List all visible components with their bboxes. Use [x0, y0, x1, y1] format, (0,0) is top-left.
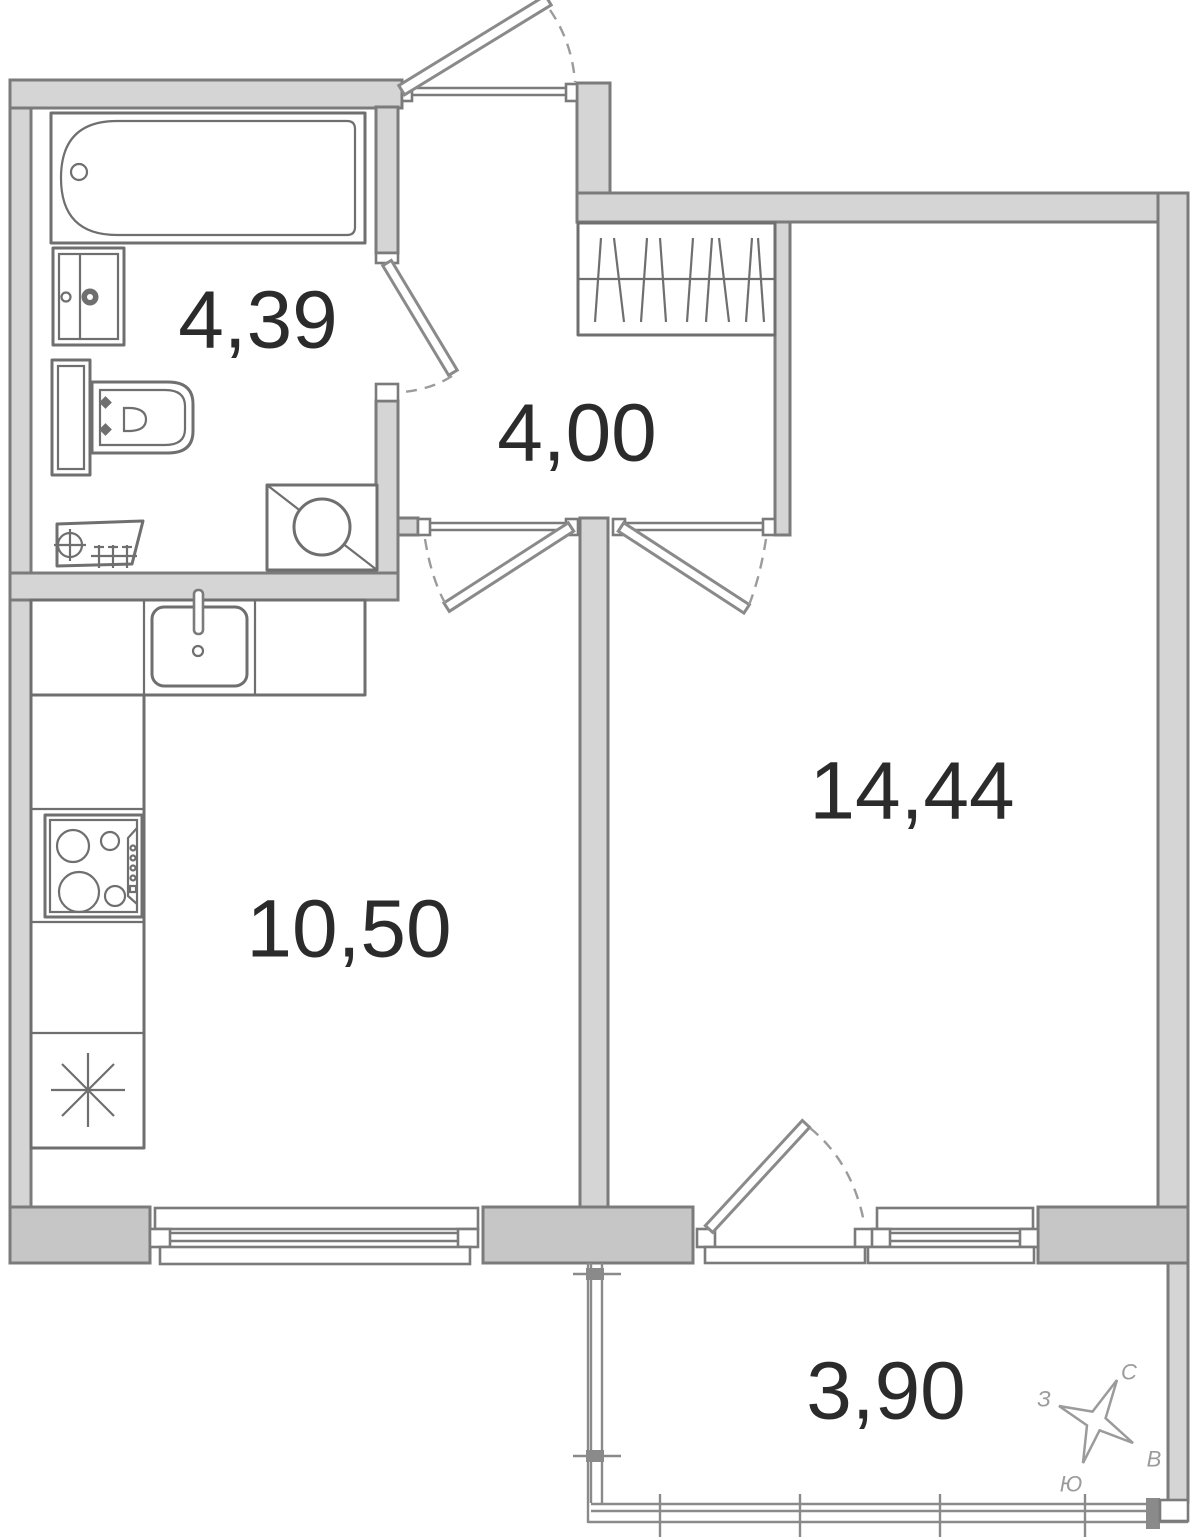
- door-swing-arc: [810, 1128, 864, 1222]
- door-swing-arc: [749, 539, 766, 605]
- entrance-door: [399, 0, 577, 101]
- window-sill: [160, 1247, 470, 1264]
- bathroom-door-leaf-icon: [383, 260, 457, 375]
- balcony-area-label: 3,90: [806, 1346, 966, 1437]
- wall-bathroom-right-lower: [376, 401, 398, 600]
- living-room-door: [613, 519, 775, 613]
- wall-left: [10, 80, 31, 1263]
- wall-top: [10, 80, 402, 108]
- kitchen-door: [418, 519, 578, 611]
- bathroom-sink-icon: [53, 248, 124, 345]
- toilet-icon: [52, 360, 193, 475]
- wardrobe-icon: [578, 223, 775, 335]
- door-swing-arc: [550, 10, 575, 82]
- bathroom-door: [376, 253, 457, 401]
- balcony-door: [697, 1121, 877, 1263]
- wall-bottom-left: [10, 1207, 150, 1263]
- washing-machine-icon: [267, 485, 377, 570]
- door-sill: [705, 1247, 865, 1263]
- door-jamb: [376, 384, 398, 401]
- door-jamb: [566, 84, 577, 101]
- radiator-icon: [54, 521, 143, 568]
- compass-north-label: С: [1121, 1360, 1137, 1385]
- compass-south-label: Ю: [1060, 1472, 1083, 1497]
- floor-plan-drawing: 4,39 4,00 10,50 14,44 3,90 С З В Ю: [0, 0, 1192, 1540]
- window-post: [872, 1229, 890, 1247]
- door-swing-arc: [425, 539, 445, 603]
- compass-east-label: В: [1147, 1447, 1162, 1472]
- window-post: [1020, 1229, 1038, 1247]
- wall-bottom-right: [1038, 1207, 1188, 1263]
- window-recess: [877, 1208, 1033, 1229]
- compass-rose-icon: С З В Ю: [1037, 1360, 1161, 1497]
- glazing-corner-post: [1146, 1498, 1160, 1529]
- entrance-door-leaf-icon: [399, 0, 551, 95]
- compass-star-icon: [1059, 1380, 1133, 1463]
- kitchen-door-leaf-icon: [444, 523, 574, 612]
- balcony-door-leaf-icon: [705, 1121, 809, 1233]
- stove-icon: [45, 815, 142, 917]
- wall-hallway-living: [775, 222, 790, 535]
- living-door-leaf-icon: [618, 523, 749, 613]
- kitchen-area-label: 10,50: [246, 884, 451, 975]
- window-recess: [155, 1208, 478, 1229]
- living-room-area-label: 14,44: [809, 746, 1014, 837]
- floor-plan: 4,39 4,00 10,50 14,44 3,90 С З В Ю: [0, 0, 1192, 1540]
- glazing-end-box: [1160, 1500, 1188, 1521]
- living-room-window: [868, 1208, 1038, 1263]
- faucet-icon: [194, 590, 203, 634]
- door-jamb: [418, 519, 430, 535]
- wall-bottom-middle: [483, 1207, 693, 1263]
- wall-balcony-right: [1168, 1263, 1188, 1502]
- kitchen-window: [150, 1208, 478, 1264]
- wall-living-top: [577, 193, 1188, 222]
- window-post: [458, 1229, 478, 1247]
- wall-bathroom-right-upper: [376, 107, 398, 253]
- hallway-area-label: 4,00: [497, 388, 657, 479]
- compass-west-label: З: [1037, 1387, 1051, 1412]
- window-post: [150, 1229, 170, 1247]
- fridge-icon: [51, 1053, 125, 1127]
- window-sill: [868, 1247, 1034, 1263]
- bathroom-area-label: 4,39: [178, 275, 338, 366]
- door-jamb: [763, 519, 775, 535]
- wall-stub-kitchen: [398, 518, 418, 535]
- door-swing-arc: [403, 376, 452, 392]
- wall-kitchen-living: [580, 518, 608, 1207]
- wall-right: [1158, 193, 1188, 1207]
- bathtub-icon: [51, 113, 365, 243]
